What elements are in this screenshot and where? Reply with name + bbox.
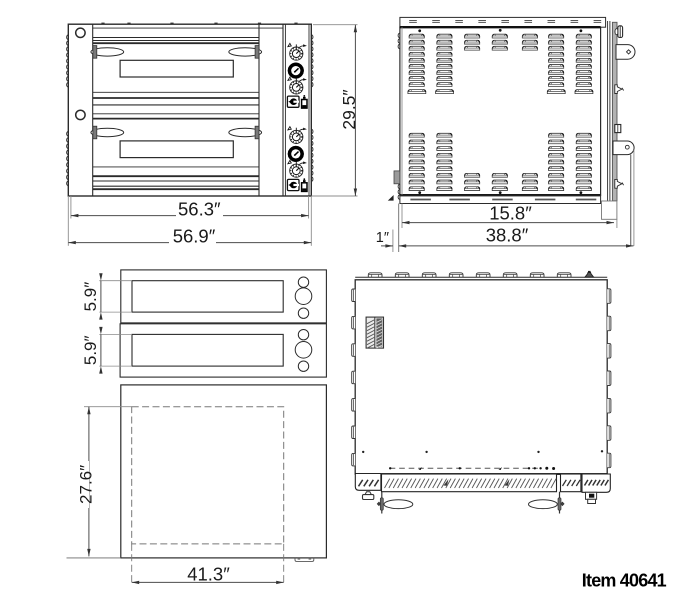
svg-text:27.6″: 27.6″	[77, 465, 96, 504]
svg-text:5.9″: 5.9″	[81, 282, 100, 312]
svg-text:15.8″: 15.8″	[489, 202, 532, 223]
svg-text:41.3″: 41.3″	[187, 563, 230, 584]
svg-text:1″: 1″	[376, 230, 389, 246]
svg-text:56.3″: 56.3″	[178, 198, 221, 219]
svg-text:56.9″: 56.9″	[173, 225, 216, 246]
svg-text:38.8″: 38.8″	[486, 225, 529, 246]
svg-text:5.9″: 5.9″	[81, 335, 100, 365]
svg-text:Item 40641: Item 40641	[582, 570, 667, 590]
svg-text:29.5″: 29.5″	[339, 89, 359, 129]
